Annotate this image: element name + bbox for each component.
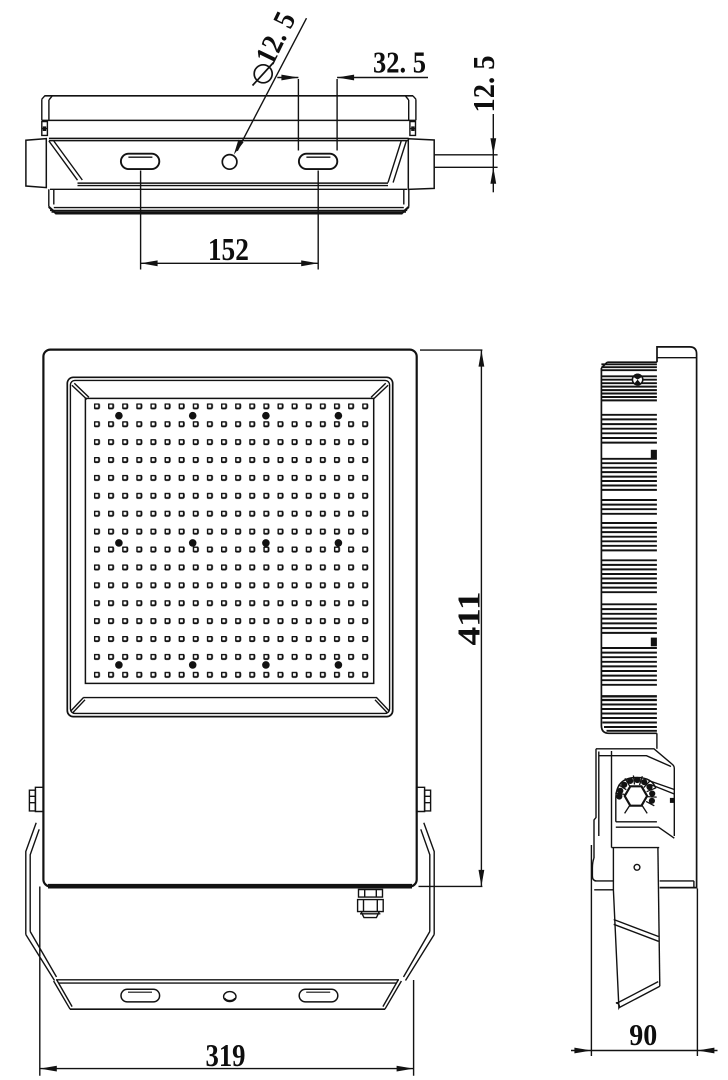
svg-text:152: 152 (208, 231, 249, 267)
svg-text:32. 5: 32. 5 (373, 45, 426, 80)
svg-text:12. 5: 12. 5 (249, 7, 302, 70)
svg-text:12. 5: 12. 5 (466, 56, 501, 113)
svg-text:90: 90 (629, 1017, 657, 1052)
svg-text:319: 319 (206, 1037, 246, 1073)
svg-text:411: 411 (450, 592, 486, 646)
